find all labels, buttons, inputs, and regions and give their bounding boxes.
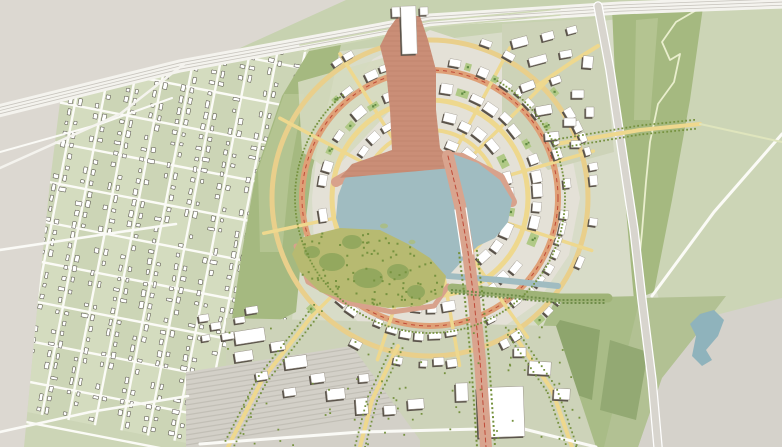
- masterplan-map-canvas: [0, 0, 782, 447]
- masterplan-map: [0, 0, 782, 447]
